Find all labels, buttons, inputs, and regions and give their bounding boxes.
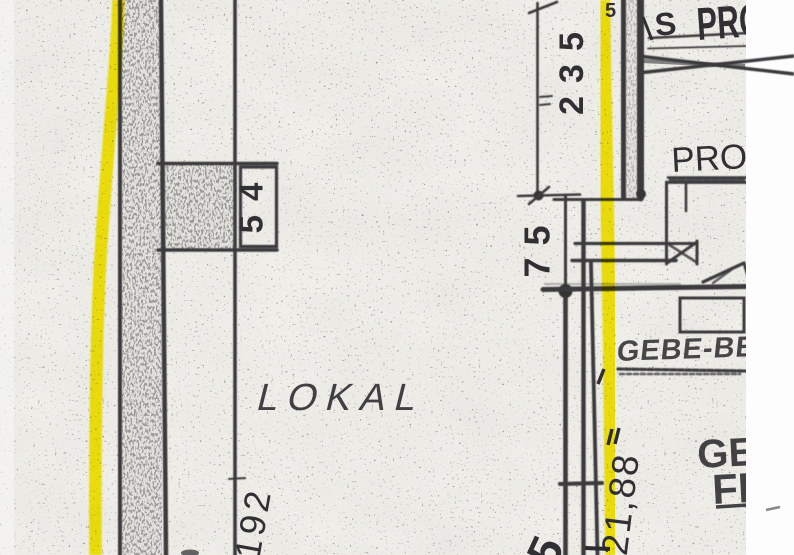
svg-text:GEBE-BE: GEBE-BE	[615, 331, 757, 368]
svg-text:54: 54	[233, 169, 270, 234]
svg-text:75: 75	[517, 213, 558, 277]
svg-text:235: 235	[553, 19, 591, 115]
svg-text:LOKAL: LOKAL	[253, 377, 431, 419]
svg-text:S: S	[653, 5, 678, 43]
svg-text:5: 5	[605, 0, 616, 22]
